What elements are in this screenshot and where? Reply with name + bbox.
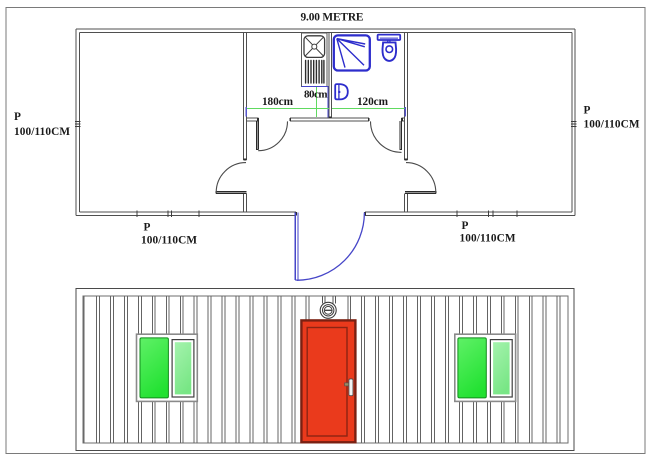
- svg-text:100/110CM: 100/110CM: [584, 119, 640, 131]
- svg-text:100/110CM: 100/110CM: [14, 126, 70, 138]
- svg-text:P: P: [14, 111, 21, 123]
- svg-text:9.00 METRE: 9.00 METRE: [301, 12, 364, 24]
- svg-text:P: P: [144, 222, 151, 234]
- svg-text:P: P: [462, 220, 469, 232]
- svg-text:80cm: 80cm: [304, 89, 328, 101]
- svg-text:100/110CM: 100/110CM: [141, 235, 197, 247]
- svg-text:180cm: 180cm: [262, 96, 294, 108]
- svg-text:P: P: [584, 105, 591, 117]
- svg-text:100/110CM: 100/110CM: [460, 233, 516, 245]
- svg-text:120cm: 120cm: [357, 96, 389, 108]
